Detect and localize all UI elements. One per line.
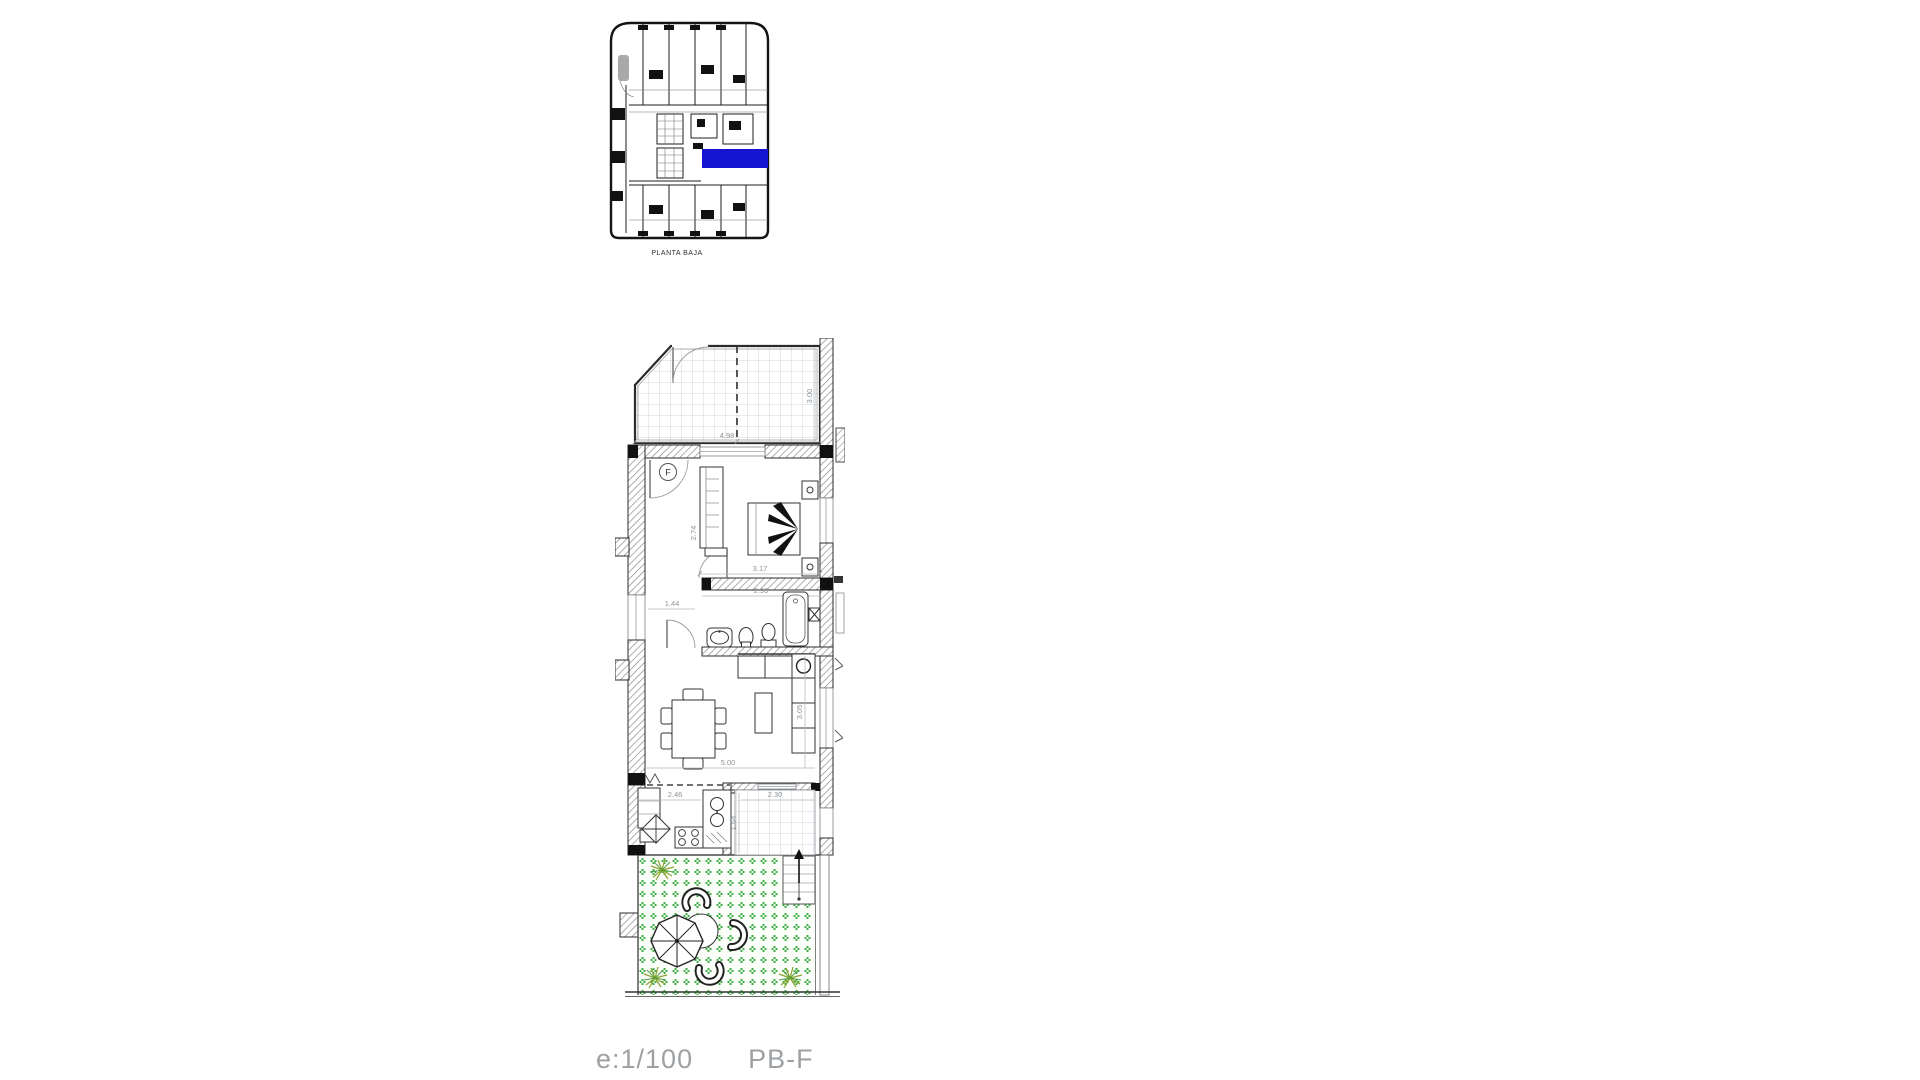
main-floor-plan: 4.98 3.00 bbox=[615, 338, 845, 1003]
bed bbox=[748, 502, 800, 556]
toilet bbox=[761, 624, 776, 648]
dim-living-width: 5.00 bbox=[721, 758, 736, 767]
nightstand-top bbox=[802, 481, 818, 499]
dim-bedroom-depth: 2.74 bbox=[689, 526, 698, 541]
dim-hallway-width: 1.44 bbox=[665, 599, 680, 608]
living-side-window bbox=[820, 688, 833, 748]
highlighted-unit bbox=[702, 149, 768, 168]
duct-box bbox=[809, 608, 820, 621]
washbasin bbox=[707, 628, 732, 647]
garden bbox=[625, 849, 840, 997]
bathtub bbox=[783, 592, 808, 646]
plan-code: PB-F bbox=[748, 1044, 814, 1074]
bidet bbox=[739, 628, 753, 648]
floor-plan-page: PLANTA BAJA bbox=[0, 0, 1920, 1080]
nightstand-bottom bbox=[802, 558, 818, 576]
dining-set bbox=[661, 689, 726, 769]
coffee-table bbox=[755, 693, 772, 733]
neighbor-fragments bbox=[834, 428, 845, 742]
fan-coil-symbol: F bbox=[660, 464, 677, 481]
svg-text:F: F bbox=[665, 468, 671, 478]
boiler-symbol bbox=[645, 774, 660, 783]
living-door bbox=[667, 620, 695, 648]
bedroom: 3.17 2.74 bbox=[689, 467, 822, 576]
living-room: 5.00 3.05 bbox=[645, 654, 815, 769]
key-plan: PLANTA BAJA bbox=[605, 15, 775, 260]
dim-living-depth: 3.05 bbox=[795, 705, 804, 720]
dim-bedroom-width: 3.17 bbox=[753, 564, 768, 573]
plan-caption: e:1/100PB-F bbox=[596, 1044, 869, 1075]
bedroom-side-window bbox=[820, 498, 833, 543]
hall-window bbox=[628, 595, 645, 640]
kitchen: 2.46 bbox=[638, 774, 731, 848]
dim-entry-depth: 1.64 bbox=[729, 816, 738, 831]
plan-scale: e:1/100 bbox=[596, 1044, 693, 1074]
dim-terrace-width: 4.98 bbox=[720, 431, 735, 440]
side-table bbox=[792, 654, 815, 678]
dim-entry-width: 2.30 bbox=[768, 790, 783, 799]
dim-kitchen-width: 2.46 bbox=[668, 790, 683, 799]
entry-court: 2.30 1.64 bbox=[729, 790, 815, 855]
terrace: 4.98 3.00 bbox=[633, 344, 820, 444]
wardrobe bbox=[700, 467, 727, 556]
garden-staircase bbox=[783, 849, 815, 904]
bathroom: 2.90 bbox=[702, 586, 820, 647]
dim-terrace-depth: 3.00 bbox=[805, 389, 814, 404]
stove bbox=[675, 827, 703, 848]
dim-bathroom-width: 2.90 bbox=[754, 586, 769, 595]
key-plan-caption: PLANTA BAJA bbox=[651, 250, 702, 257]
parasol bbox=[651, 915, 703, 967]
sink-counter bbox=[703, 790, 731, 848]
entry-door-gap bbox=[820, 808, 833, 838]
